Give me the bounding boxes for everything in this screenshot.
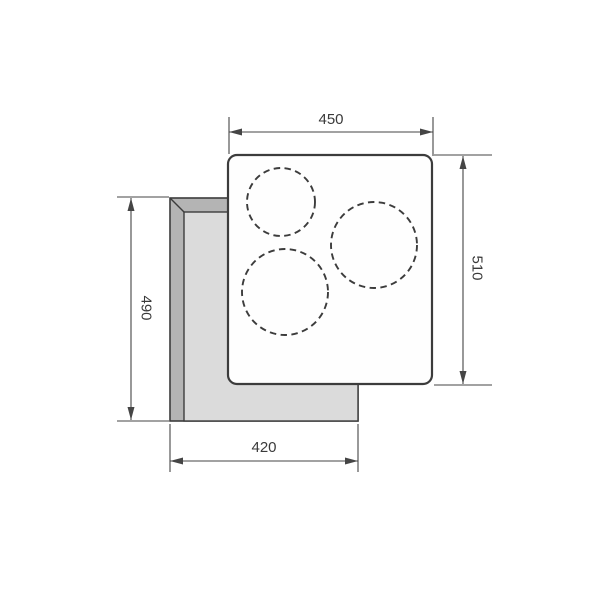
arrowhead-down-icon [460, 371, 467, 384]
arrowhead-right-icon [420, 129, 433, 136]
dimension-label-top: 450 [318, 111, 343, 128]
arrowhead-down-icon [128, 407, 135, 420]
arrowhead-up-icon [128, 198, 135, 211]
dimension-left-height: 490 [117, 197, 169, 421]
diagram-stage: 450 510 490 420 [0, 0, 600, 600]
dimension-right-height: 510 [434, 155, 492, 385]
dimension-bottom-width: 420 [170, 424, 358, 472]
dimension-label-bottom: 420 [251, 439, 276, 456]
arrowhead-left-icon [229, 129, 242, 136]
arrowhead-left-icon [170, 458, 183, 465]
arrowhead-up-icon [460, 156, 467, 169]
dimension-label-left: 490 [138, 295, 155, 320]
dimension-top-width: 450 [229, 111, 433, 156]
installation-diagram: 450 510 490 420 [0, 0, 600, 600]
arrowhead-right-icon [345, 458, 358, 465]
cooktop-glass-surface [228, 155, 432, 384]
dimension-label-right: 510 [469, 255, 486, 280]
cooktop-panel [228, 155, 432, 384]
